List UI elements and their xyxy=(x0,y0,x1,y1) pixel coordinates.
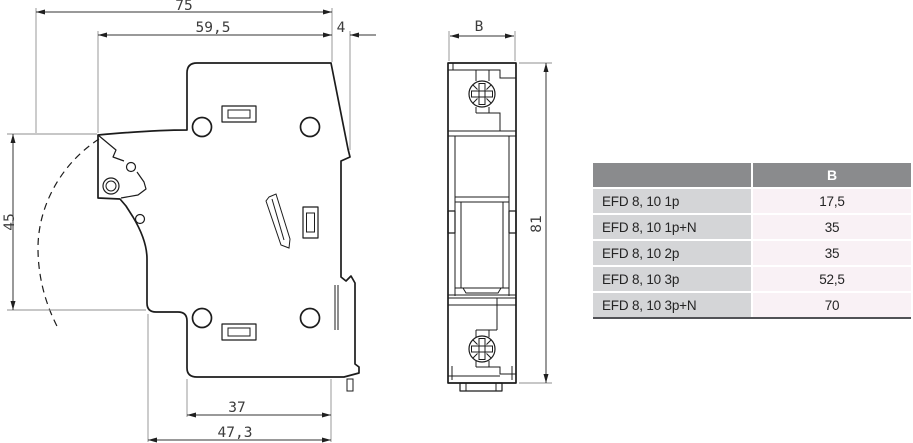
model-cell: EFD 8, 10 3p xyxy=(593,266,752,292)
technical-drawing-page: 75 59,5 4 45 37 47,3 B 81 B EFD 8, 10 1p… xyxy=(0,0,913,443)
mounting-foot xyxy=(460,383,502,391)
table-row: EFD 8, 10 3p+N 70 xyxy=(593,292,911,318)
dim-total-depth: 75 xyxy=(175,0,192,14)
terminal-hole xyxy=(301,118,320,137)
table-row: EFD 8, 10 1p+N 35 xyxy=(593,214,911,240)
terminal-hole xyxy=(301,309,320,328)
side-tab xyxy=(509,211,516,233)
terminal-screw-top xyxy=(469,81,495,107)
value-cell: 17,5 xyxy=(752,188,911,214)
side-slot xyxy=(303,207,318,238)
side-tab xyxy=(448,211,455,233)
dim-base-depth: 37 xyxy=(228,400,245,416)
lever-pivot xyxy=(103,178,119,194)
value-cell: 35 xyxy=(752,240,911,266)
front-view-outline xyxy=(448,63,516,383)
terminal-screw-bottom xyxy=(469,336,495,362)
front-view-details xyxy=(448,63,516,380)
value-cell: 70 xyxy=(752,292,911,318)
dimension-labels: 75 59,5 4 45 37 47,3 B 81 xyxy=(2,0,545,441)
cable-slot-top xyxy=(222,106,256,122)
dim-front-height: 45 xyxy=(2,213,18,230)
table-row: EFD 8, 10 3p 52,5 xyxy=(593,266,911,292)
dim-rail-offset: 4 xyxy=(337,20,346,36)
dimension-table: B EFD 8, 10 1p 17,5 EFD 8, 10 1p+N 35 EF… xyxy=(593,163,911,319)
dim-width-b: B xyxy=(475,19,484,35)
cable-slot-bottom xyxy=(222,324,256,340)
table-row: EFD 8, 10 2p 35 xyxy=(593,240,911,266)
terminal-hole xyxy=(193,309,212,328)
table-header-model xyxy=(593,163,752,188)
release-lever xyxy=(98,135,146,224)
model-cell: EFD 8, 10 1p+N xyxy=(593,214,752,240)
table-row: EFD 8, 10 1p 17,5 xyxy=(593,188,911,214)
dim-height: 81 xyxy=(529,215,545,232)
model-cell: EFD 8, 10 1p xyxy=(593,188,752,214)
lever-swing-arc xyxy=(38,139,99,330)
indicator-blade xyxy=(266,194,290,248)
model-cell: EFD 8, 10 3p+N xyxy=(593,292,752,318)
model-cell: EFD 8, 10 2p xyxy=(593,240,752,266)
front-view xyxy=(448,63,516,391)
value-cell: 52,5 xyxy=(752,266,911,292)
dim-body-depth: 59,5 xyxy=(196,20,231,36)
terminal-hole xyxy=(193,118,212,137)
value-cell: 35 xyxy=(752,214,911,240)
table-header-row: B xyxy=(593,163,911,188)
side-view xyxy=(38,63,359,391)
dim-base-total-depth: 47,3 xyxy=(218,425,253,441)
table-header-b: B xyxy=(752,163,911,188)
